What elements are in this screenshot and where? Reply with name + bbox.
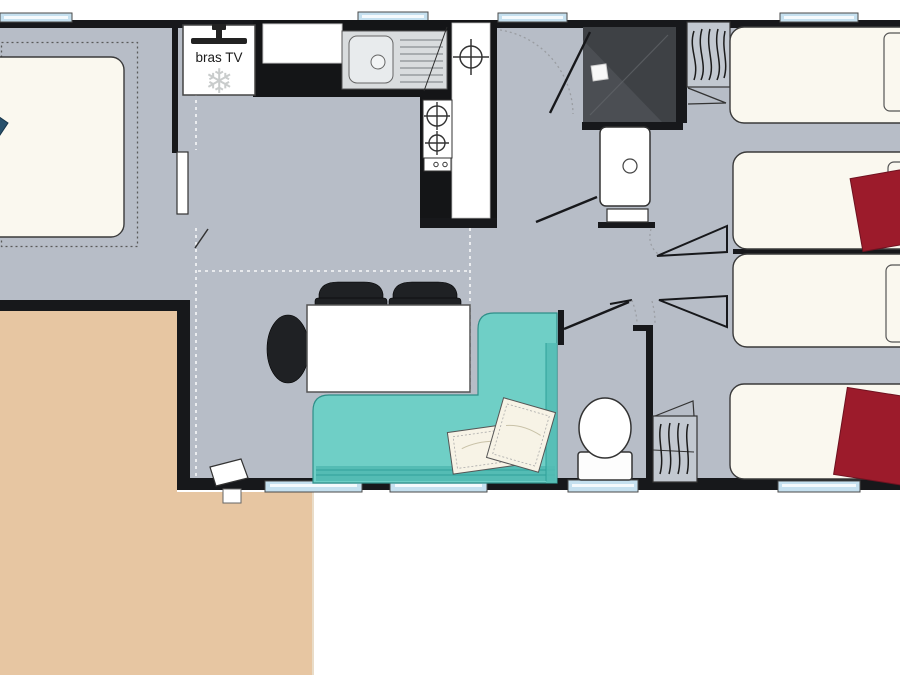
hob-two-burners bbox=[423, 100, 452, 171]
wall-terrace-top bbox=[0, 300, 190, 311]
sink-drain bbox=[371, 55, 385, 69]
kitchen-cabinet bbox=[263, 24, 342, 63]
basin-drain bbox=[623, 159, 637, 173]
wall-wc-right bbox=[646, 325, 653, 490]
wall-master-bedroom bbox=[172, 20, 178, 153]
toilet-bowl bbox=[579, 398, 631, 458]
fridge-snowflake-icon: ❄ bbox=[205, 62, 234, 102]
dining-chair-left bbox=[267, 315, 309, 383]
entry-step bbox=[223, 489, 241, 503]
dining-table bbox=[307, 305, 470, 392]
window-entry bbox=[498, 13, 567, 22]
master-double-bed bbox=[0, 57, 124, 237]
window bbox=[0, 13, 72, 22]
wall-wc-left bbox=[558, 310, 564, 345]
wall-washbasin bbox=[598, 222, 655, 228]
wall-terrace-side bbox=[177, 300, 190, 490]
floorplan-canvas: bras TV ❄ bbox=[0, 0, 900, 675]
window bbox=[778, 481, 860, 492]
shower bbox=[583, 27, 676, 122]
shower-drain bbox=[591, 64, 608, 81]
pillow bbox=[884, 33, 900, 111]
bedrooms-right bbox=[730, 27, 900, 487]
master-door-leaf bbox=[177, 152, 188, 214]
floorplan-drawing: bras TV ❄ bbox=[0, 0, 900, 675]
wall-wardrobe-left bbox=[680, 20, 687, 123]
single-bed-1 bbox=[730, 27, 900, 123]
window bbox=[568, 480, 638, 492]
single-bed-3 bbox=[733, 254, 900, 347]
basin-step bbox=[607, 209, 648, 222]
window bbox=[358, 12, 428, 21]
bras-tv-box: bras TV ❄ bbox=[183, 24, 255, 102]
kitchen-sink bbox=[342, 27, 447, 91]
window bbox=[780, 13, 858, 22]
sofa-front-edge bbox=[316, 466, 555, 481]
toilet bbox=[578, 398, 632, 480]
pillow bbox=[886, 265, 900, 342]
